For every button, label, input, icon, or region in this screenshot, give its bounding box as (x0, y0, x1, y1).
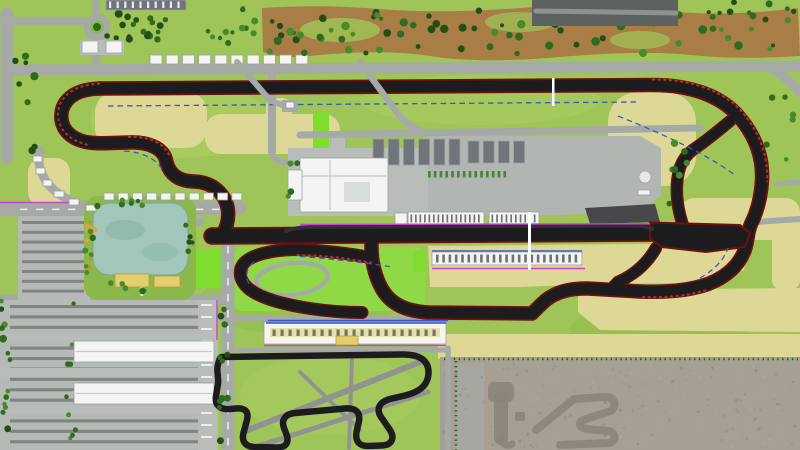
scrub-vegetation (730, 424, 732, 426)
garage-building (468, 141, 479, 163)
grandstand-seat-row (474, 255, 477, 263)
tree (190, 240, 194, 244)
scrub-vegetation (604, 386, 606, 388)
tree (458, 45, 465, 52)
scrub-vegetation (472, 383, 474, 385)
scrub-vegetation (651, 393, 653, 395)
parked-car (503, 171, 506, 178)
scrub-vegetation (666, 409, 668, 411)
scrub-vegetation (526, 433, 529, 436)
tree (8, 357, 13, 362)
tree (108, 280, 114, 286)
tree (206, 29, 211, 34)
depot-road (536, 11, 676, 13)
pit-box (492, 215, 494, 223)
scrub-vegetation (718, 405, 720, 407)
scrub-vegetation (710, 376, 712, 378)
scrub-vegetation (463, 373, 465, 375)
scrub-vegetation (707, 395, 710, 398)
tree (224, 395, 231, 402)
scrub-vegetation (533, 399, 535, 401)
scrub-vegetation (537, 397, 540, 400)
pit-box (524, 215, 526, 223)
tree (223, 29, 229, 35)
parking-row (22, 241, 84, 244)
tree (379, 17, 383, 21)
scrub-vegetation (518, 439, 521, 442)
pit-box (515, 215, 517, 223)
parked-car (434, 171, 437, 178)
scrub-vegetation (548, 379, 551, 382)
lime-green-patch (413, 250, 426, 272)
scrub-vegetation (767, 446, 769, 448)
road-marking (52, 209, 60, 211)
scrub-vegetation (538, 411, 542, 415)
tree (676, 172, 683, 179)
tree (782, 94, 787, 99)
scrub-vegetation (525, 370, 528, 373)
grandstand-block (280, 55, 292, 64)
grandstand-seat-row (499, 255, 502, 263)
tree (698, 25, 707, 34)
tree (591, 37, 600, 46)
tree (517, 20, 525, 28)
tree (218, 313, 225, 320)
pit-box (469, 215, 471, 223)
debris-fence (300, 224, 650, 225)
scrub-vegetation (490, 425, 492, 427)
tree (383, 29, 391, 37)
tree (185, 248, 191, 254)
scrub-vegetation (590, 387, 592, 389)
grandstand-block (296, 55, 308, 64)
grandstand-seat-row (455, 255, 458, 263)
tree (766, 0, 773, 7)
tree (749, 27, 754, 32)
tree (769, 94, 775, 100)
grandstand-seats (273, 330, 436, 337)
scrub-vegetation (682, 393, 685, 396)
scrub-vegetation (625, 383, 627, 385)
tree (226, 41, 231, 46)
scrub-vegetation (677, 441, 679, 443)
grandstand-seat-row (436, 255, 439, 263)
scrub-vegetation (602, 423, 605, 426)
tree (707, 10, 711, 14)
parking-row (22, 250, 84, 253)
scrub-vegetation (594, 367, 596, 369)
scrub-vegetation (762, 389, 764, 391)
tree (791, 9, 796, 14)
parking-row (10, 305, 198, 308)
scrub-vegetation (752, 364, 755, 367)
tree (750, 12, 757, 19)
parking-bay (201, 376, 212, 378)
tree (2, 402, 6, 406)
grandstand-seat-row (568, 255, 571, 263)
grandstand-block (232, 193, 242, 200)
scrub-vegetation (776, 403, 779, 406)
scrub-vegetation (684, 379, 686, 381)
tree (230, 30, 234, 34)
grandstand-seat-row (369, 330, 372, 337)
grandstand-seat-row (313, 330, 316, 337)
parking-bay (201, 364, 212, 366)
parking-row (22, 221, 84, 224)
scrub-vegetation (711, 366, 714, 369)
tree (363, 51, 368, 56)
grandstand-seat-row (425, 330, 428, 337)
tree (217, 405, 222, 410)
parking-bay (201, 316, 212, 318)
pit-box (447, 215, 449, 223)
site-plan-map (0, 0, 800, 450)
road-marking (68, 209, 76, 211)
grandstand-seat-row (543, 255, 546, 263)
scrub-vegetation (774, 373, 778, 377)
parked-car (492, 171, 495, 178)
parking-lot-west (18, 216, 90, 300)
building-courtyard (344, 182, 370, 202)
tree (681, 148, 688, 155)
pit-building (408, 212, 484, 224)
scrub-vegetation (627, 442, 629, 444)
pit-box (429, 215, 431, 223)
hedge-tree (114, 35, 119, 40)
scrub-vegetation (671, 380, 674, 383)
grandstand-block (199, 55, 211, 64)
tree (16, 81, 22, 87)
tree (120, 198, 125, 203)
scrub-vegetation (556, 381, 557, 382)
kart-grandstand (264, 322, 446, 345)
tree (267, 48, 273, 54)
site-plan-page (0, 0, 800, 450)
parking-row (10, 419, 198, 422)
pit-box (496, 215, 498, 223)
scrub-vegetation (611, 381, 613, 383)
tree (557, 27, 563, 33)
tree (22, 53, 29, 60)
grandstand-seat-row (575, 255, 578, 263)
building-bay (155, 2, 157, 9)
scrub-vegetation (670, 374, 672, 376)
scrub-vegetation (727, 437, 729, 439)
scrub-vegetation (554, 397, 558, 401)
grandstand-seat-row (289, 330, 292, 337)
lake-park (84, 196, 196, 300)
building-bay (132, 2, 134, 9)
tree (89, 252, 94, 257)
tree (3, 394, 9, 400)
tree (188, 234, 193, 239)
garage-building (498, 141, 509, 163)
garage-building (514, 141, 525, 163)
scrub-vegetation (689, 370, 691, 372)
grandstand-seat-row (385, 330, 388, 337)
scrub-vegetation (735, 399, 738, 402)
tree (350, 32, 355, 37)
scrub-vegetation (776, 406, 780, 410)
grandstand-block (54, 191, 64, 197)
scrub-vegetation (549, 403, 551, 405)
scrub-vegetation (618, 397, 620, 399)
grandstand-block (43, 180, 52, 186)
scrub-vegetation (481, 391, 483, 393)
tree (329, 28, 334, 33)
tree (667, 201, 673, 207)
hedge-tree (157, 22, 164, 29)
tree (274, 37, 282, 45)
pit-box (520, 215, 522, 223)
gate-building (82, 41, 98, 53)
scrub-vegetation (653, 369, 656, 372)
tree (30, 72, 38, 80)
scrub-vegetation (668, 419, 671, 422)
parked-car (428, 171, 431, 178)
scrub-vegetation (741, 421, 743, 423)
parking-bay (201, 304, 212, 306)
scrub-vegetation (529, 444, 532, 447)
scrub-vegetation (583, 373, 585, 375)
parking-row (22, 280, 84, 283)
entrance-gate (80, 40, 124, 55)
grandstand-seat-row (377, 330, 380, 337)
grandstand-seat-row (401, 330, 404, 337)
scrub-vegetation (644, 436, 647, 439)
tree (139, 288, 145, 294)
track-gantry (552, 78, 555, 106)
scrub-vegetation (625, 374, 628, 377)
parked-car (480, 171, 483, 178)
grandstand-seat-row (556, 255, 559, 263)
small-building (638, 190, 650, 195)
tree (719, 27, 724, 32)
scrub-vegetation (678, 407, 681, 410)
scrub-vegetation (478, 431, 480, 433)
grandstand-seat-row (461, 255, 464, 263)
scrub-vegetation (633, 384, 634, 385)
tree (241, 6, 245, 10)
scrub-vegetation (737, 410, 740, 413)
scrub-vegetation (732, 428, 735, 431)
main-straight (212, 233, 655, 236)
paddock-area (288, 136, 661, 224)
scrub-vegetation (673, 362, 676, 365)
scrub-vegetation (754, 408, 756, 410)
garage-building (419, 139, 430, 165)
scrub-vegetation (480, 376, 483, 379)
road-marking (227, 246, 229, 254)
scrub-vegetation (760, 396, 762, 398)
scrub-vegetation (598, 409, 600, 411)
scrub-vegetation (468, 367, 469, 368)
scrub-vegetation (482, 400, 485, 403)
lake (93, 203, 188, 275)
tree (319, 14, 327, 22)
building-bay (170, 2, 172, 9)
tree (790, 117, 796, 123)
building-bay (109, 2, 111, 9)
grandstand-seat-row (273, 330, 276, 337)
grandstand-seat-row (417, 330, 420, 337)
scrub-vegetation (735, 436, 738, 439)
flower-bed (93, 228, 97, 232)
scrub-vegetation (604, 435, 607, 438)
grandstand-block (161, 193, 171, 200)
tree (288, 188, 295, 195)
lake-depth (142, 243, 178, 261)
scrub-vegetation (659, 377, 662, 380)
tree (459, 24, 467, 32)
grandstand-seat-row (433, 330, 436, 337)
scrub-vegetation (512, 403, 515, 406)
dry-grass-band (438, 334, 800, 359)
road-marking (227, 422, 229, 430)
tree (600, 35, 606, 41)
scrub-vegetation (503, 368, 505, 370)
scrub-vegetation (563, 416, 566, 419)
parked-car (451, 171, 454, 178)
tree (771, 43, 775, 47)
tree (710, 26, 716, 32)
garage-building (449, 139, 460, 165)
pit-box (442, 215, 444, 223)
pit-box (478, 215, 480, 223)
tree (251, 30, 257, 36)
road-marking (227, 374, 229, 382)
parking-row (22, 231, 84, 234)
scrub-vegetation (514, 368, 517, 371)
tree (515, 51, 520, 56)
road-marking (227, 438, 229, 446)
parked-car (463, 171, 466, 178)
tree (84, 264, 88, 268)
scrub-vegetation (763, 375, 766, 378)
scrub-vegetation (637, 407, 639, 409)
scrub-vegetation (568, 410, 570, 412)
scrub-vegetation (784, 391, 786, 393)
building-bay (162, 2, 164, 9)
tree (217, 355, 222, 360)
parking-bay (201, 328, 212, 330)
hedge-tree (115, 10, 123, 18)
pit-box (415, 215, 417, 223)
tree (82, 248, 88, 254)
scrub-vegetation (767, 404, 769, 406)
tree (251, 18, 258, 25)
hedge-tree (126, 36, 133, 43)
scrub-vegetation (513, 363, 515, 365)
scrub-vegetation (491, 443, 494, 446)
grandstand-block (215, 55, 227, 64)
parking-row (10, 315, 198, 318)
tree (764, 142, 770, 148)
scrub-vegetation (569, 414, 572, 417)
scrub-vegetation (787, 447, 789, 449)
garage-building (403, 139, 414, 165)
road-marking (227, 342, 229, 350)
flower-bed (85, 238, 90, 243)
tree (287, 160, 293, 166)
scrub-vegetation (611, 368, 615, 372)
tree (725, 35, 731, 41)
scrub-vegetation (645, 407, 648, 410)
scrub-vegetation (658, 423, 660, 425)
tree (500, 23, 504, 27)
tree (491, 29, 498, 36)
scrub-vegetation (697, 410, 700, 413)
pit-box (510, 215, 512, 223)
road-marking (227, 278, 229, 286)
tree (397, 30, 404, 37)
parked-car (440, 171, 443, 178)
scrub-vegetation (637, 443, 639, 445)
grandstand-block (69, 199, 79, 205)
tree (73, 427, 78, 432)
scrub-vegetation (573, 389, 576, 392)
scrub-vegetation (702, 410, 704, 412)
scrub-vegetation (535, 445, 537, 447)
scrub-vegetation (553, 365, 556, 368)
scrub-vegetation (444, 406, 445, 407)
pit-box (465, 215, 467, 223)
scrub-vegetation (461, 388, 463, 390)
scrub-vegetation (607, 372, 610, 375)
flower-bed (85, 224, 90, 229)
scrub-vegetation (592, 381, 595, 384)
grandstand-seat-row (353, 330, 356, 337)
parked-car (457, 171, 460, 178)
grandstand-seat-row (345, 330, 348, 337)
parking-bay (201, 412, 212, 414)
small-building (286, 102, 294, 108)
scrub-vegetation (757, 427, 760, 430)
scrub-vegetation (638, 395, 640, 397)
pit-box (506, 215, 508, 223)
lakeside-building (154, 276, 180, 287)
scrub-vegetation (792, 381, 794, 383)
scrub-vegetation (628, 382, 630, 384)
scrub-vegetation (485, 397, 487, 399)
scrub-vegetation (650, 365, 652, 367)
scrub-vegetation (791, 443, 794, 446)
scrub-vegetation (761, 426, 763, 428)
roundabout-tree (93, 23, 101, 31)
building-bay (147, 2, 149, 9)
scrub-vegetation (735, 409, 737, 411)
parked-car (469, 171, 472, 178)
grandstand-seat-row (486, 255, 489, 263)
tree (6, 389, 11, 394)
pit-boxes (395, 212, 539, 224)
scrub-vegetation (538, 368, 541, 371)
building-bay (177, 2, 179, 9)
scrub-vegetation (782, 409, 784, 411)
scrub-vegetation (465, 408, 467, 410)
scrub-vegetation (515, 373, 518, 376)
grandstand-seat-row (281, 330, 284, 337)
tree (784, 157, 789, 162)
scrub-vegetation (527, 412, 529, 414)
tree (218, 36, 222, 40)
tree (84, 270, 89, 275)
scrub-vegetation (523, 384, 525, 386)
scrub-vegetation (490, 422, 492, 424)
pit-box (451, 215, 453, 223)
service-road (756, 219, 800, 222)
grandstand-block (203, 193, 213, 200)
